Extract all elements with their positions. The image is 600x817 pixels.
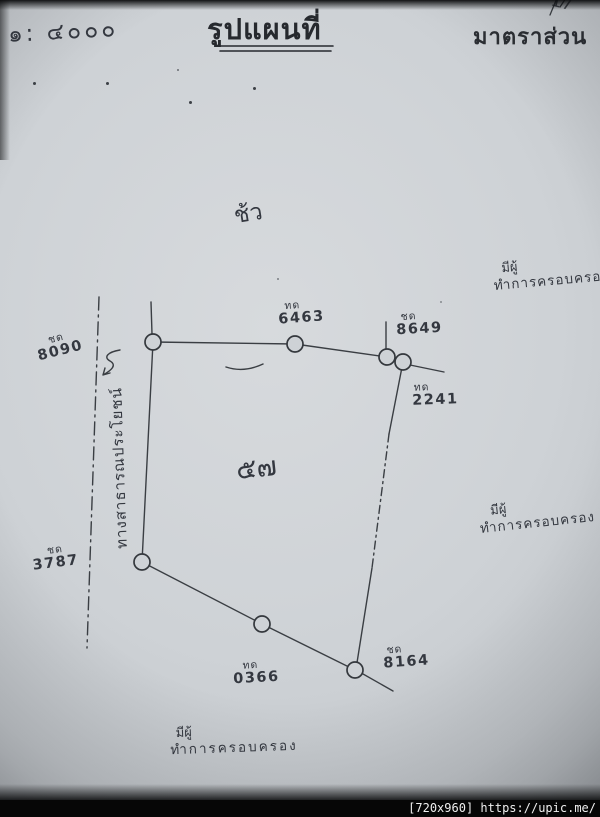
parcel-number: ๕๗ [234,444,279,491]
bottom-boundary-line [142,562,355,670]
photo-top-edge-shadow [0,0,600,10]
marker-label-8649: ชด 8649 [395,310,443,339]
watermark-bar: [720x960] https://upic.me/ [0,800,600,817]
survey-marker [145,334,161,350]
right-boundary-lower [356,568,372,669]
marker-number: 8164 [383,653,430,671]
boundary-arc-mark [226,364,263,369]
marker-number: 6463 [278,309,325,327]
survey-marker [254,616,270,632]
paper-speck [253,87,256,90]
marker-label-8164: ชด 8164 [382,642,430,671]
survey-plan-drawing [0,0,600,817]
marker-number: 8649 [396,321,443,339]
marker-label-0366: ทด 0366 [232,659,280,688]
public-road-dashed-line [87,297,99,648]
marker-number: 0366 [233,670,280,688]
marker-label-6463: ทด 6463 [277,298,325,327]
photo-bottom-shadow [0,784,600,800]
top-boundary-line [153,342,403,362]
paper-speck [177,69,179,71]
marker-label-3787: ชด 3787 [31,542,80,574]
left-boundary-line [142,342,153,562]
survey-marker [395,354,411,370]
survey-marker [287,336,303,352]
survey-marker [347,662,363,678]
photo-of-survey-document: ๑: ๔๐๐๐ รูปแผนที่ มาตราส่วน 17 ช้ว ๕๗ ทา… [0,0,600,817]
paper-speck [33,82,36,85]
marker-number: 2241 [412,392,459,409]
watermark-text: [720x960] https://upic.me/ [408,801,596,815]
survey-marker [134,554,150,570]
scale-label: มาตราส่วน [473,19,587,54]
neighbor-boundary-line [410,365,444,372]
paper-speck [189,101,192,104]
right-boundary-middle-dashed [372,434,389,568]
right-boundary-upper [389,362,403,434]
orientation-mark: ช้ว [231,194,265,234]
paper-speck [277,278,279,280]
paper-speck [106,82,109,85]
adjacent-note-bottom: มีผู้ ทำการครอบครอง [169,722,298,760]
left-boundary-stub [151,302,152,334]
page-title: รูปแผนที่ [207,6,322,52]
scale-ratio-handwritten: ๑: ๔๐๐๐ [7,11,119,53]
marker-label-2241: ทด 2241 [412,381,459,409]
survey-markers [134,334,411,678]
survey-marker [379,349,395,365]
photo-left-edge-shadow [0,0,10,160]
paper-speck [440,301,442,303]
